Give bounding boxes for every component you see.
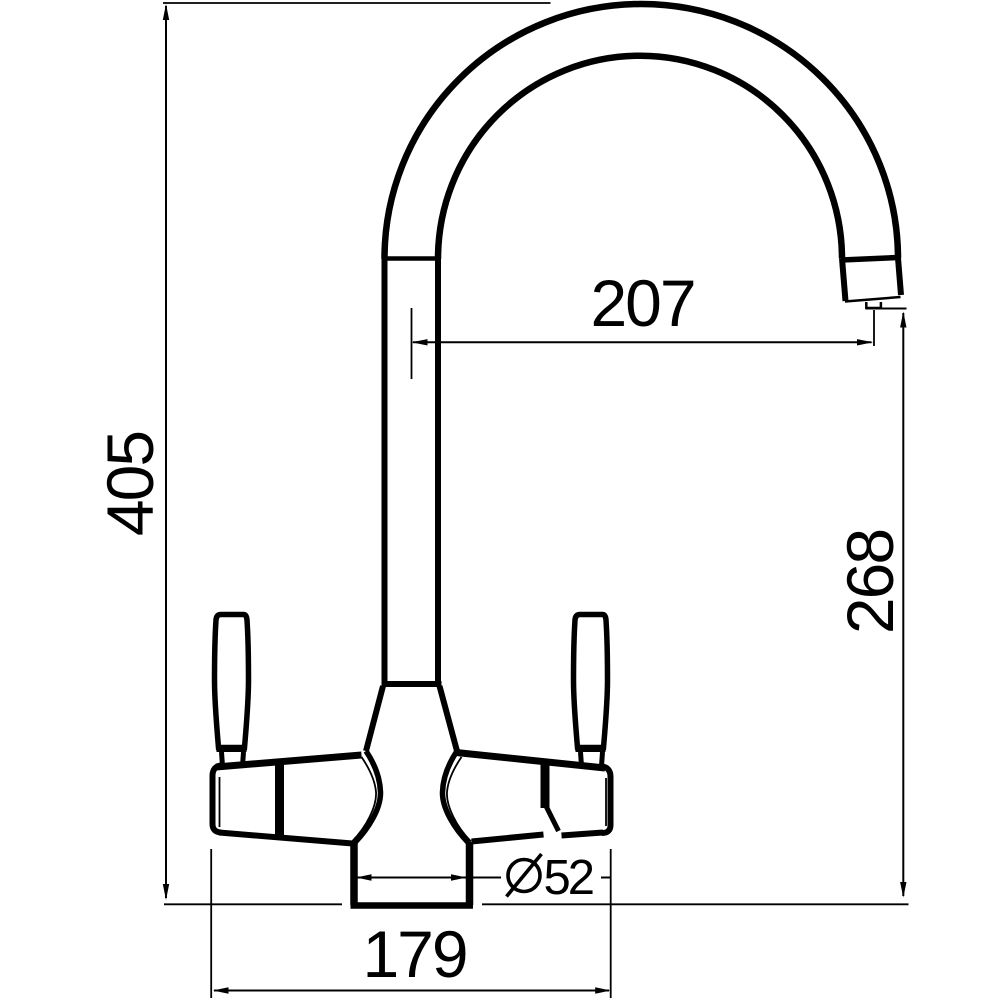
svg-text:207: 207 — [590, 266, 694, 340]
svg-text:179: 179 — [362, 917, 466, 991]
svg-text:405: 405 — [93, 432, 167, 536]
svg-text:52: 52 — [544, 851, 593, 905]
svg-text:268: 268 — [833, 530, 907, 634]
